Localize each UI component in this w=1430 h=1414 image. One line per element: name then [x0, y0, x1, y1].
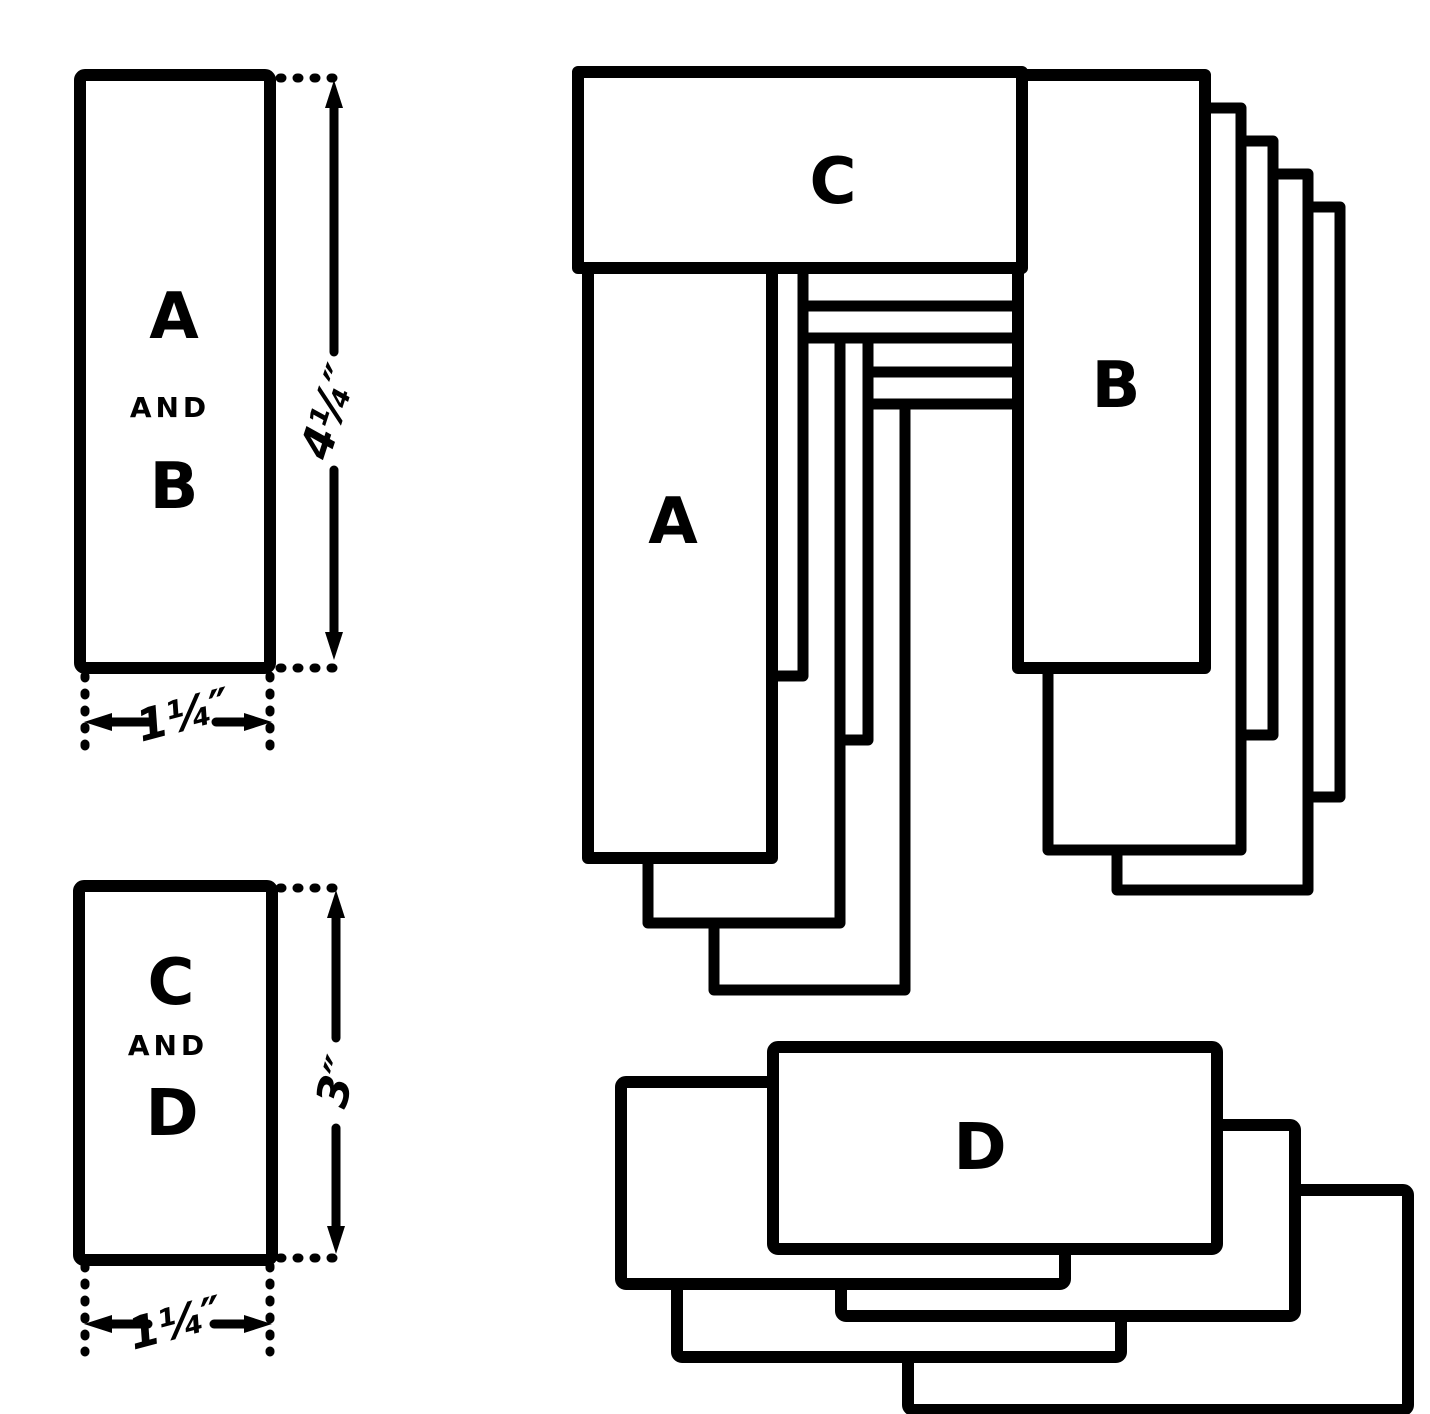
pattern-cd-length-dimension: 3″ — [310, 1052, 366, 1112]
arrowhead-down-icon — [327, 1226, 345, 1254]
assembly-piece-c — [578, 72, 1022, 268]
assembly-label-c: C — [810, 150, 857, 214]
arrowhead-down-icon — [325, 632, 343, 660]
pattern-ab-outline — [80, 75, 270, 668]
arrowhead-up-icon — [325, 80, 343, 108]
pattern-cd-letter-d: D — [145, 1082, 198, 1146]
pattern-ab-and: AND — [130, 394, 210, 422]
pattern-ab-letter-b: B — [150, 455, 199, 519]
arrowhead-up-icon — [327, 890, 345, 918]
figure-canvas: A AND B 4¼″ 1¼″ C AND D 3″ 1¼″ A B C D — [0, 0, 1430, 1414]
pattern-ab-letter-a: A — [149, 285, 199, 349]
stack-d-label: D — [953, 1116, 1006, 1180]
assembly-label-b: B — [1092, 354, 1141, 418]
pattern-cd-letter-c: C — [148, 951, 195, 1015]
lamination-c5-strip — [868, 372, 1022, 404]
assembly-piece-a — [588, 268, 772, 858]
pattern-cd-outline — [79, 886, 272, 1260]
assembly-label-a: A — [648, 490, 698, 554]
pattern-cd-and: AND — [128, 1032, 208, 1060]
